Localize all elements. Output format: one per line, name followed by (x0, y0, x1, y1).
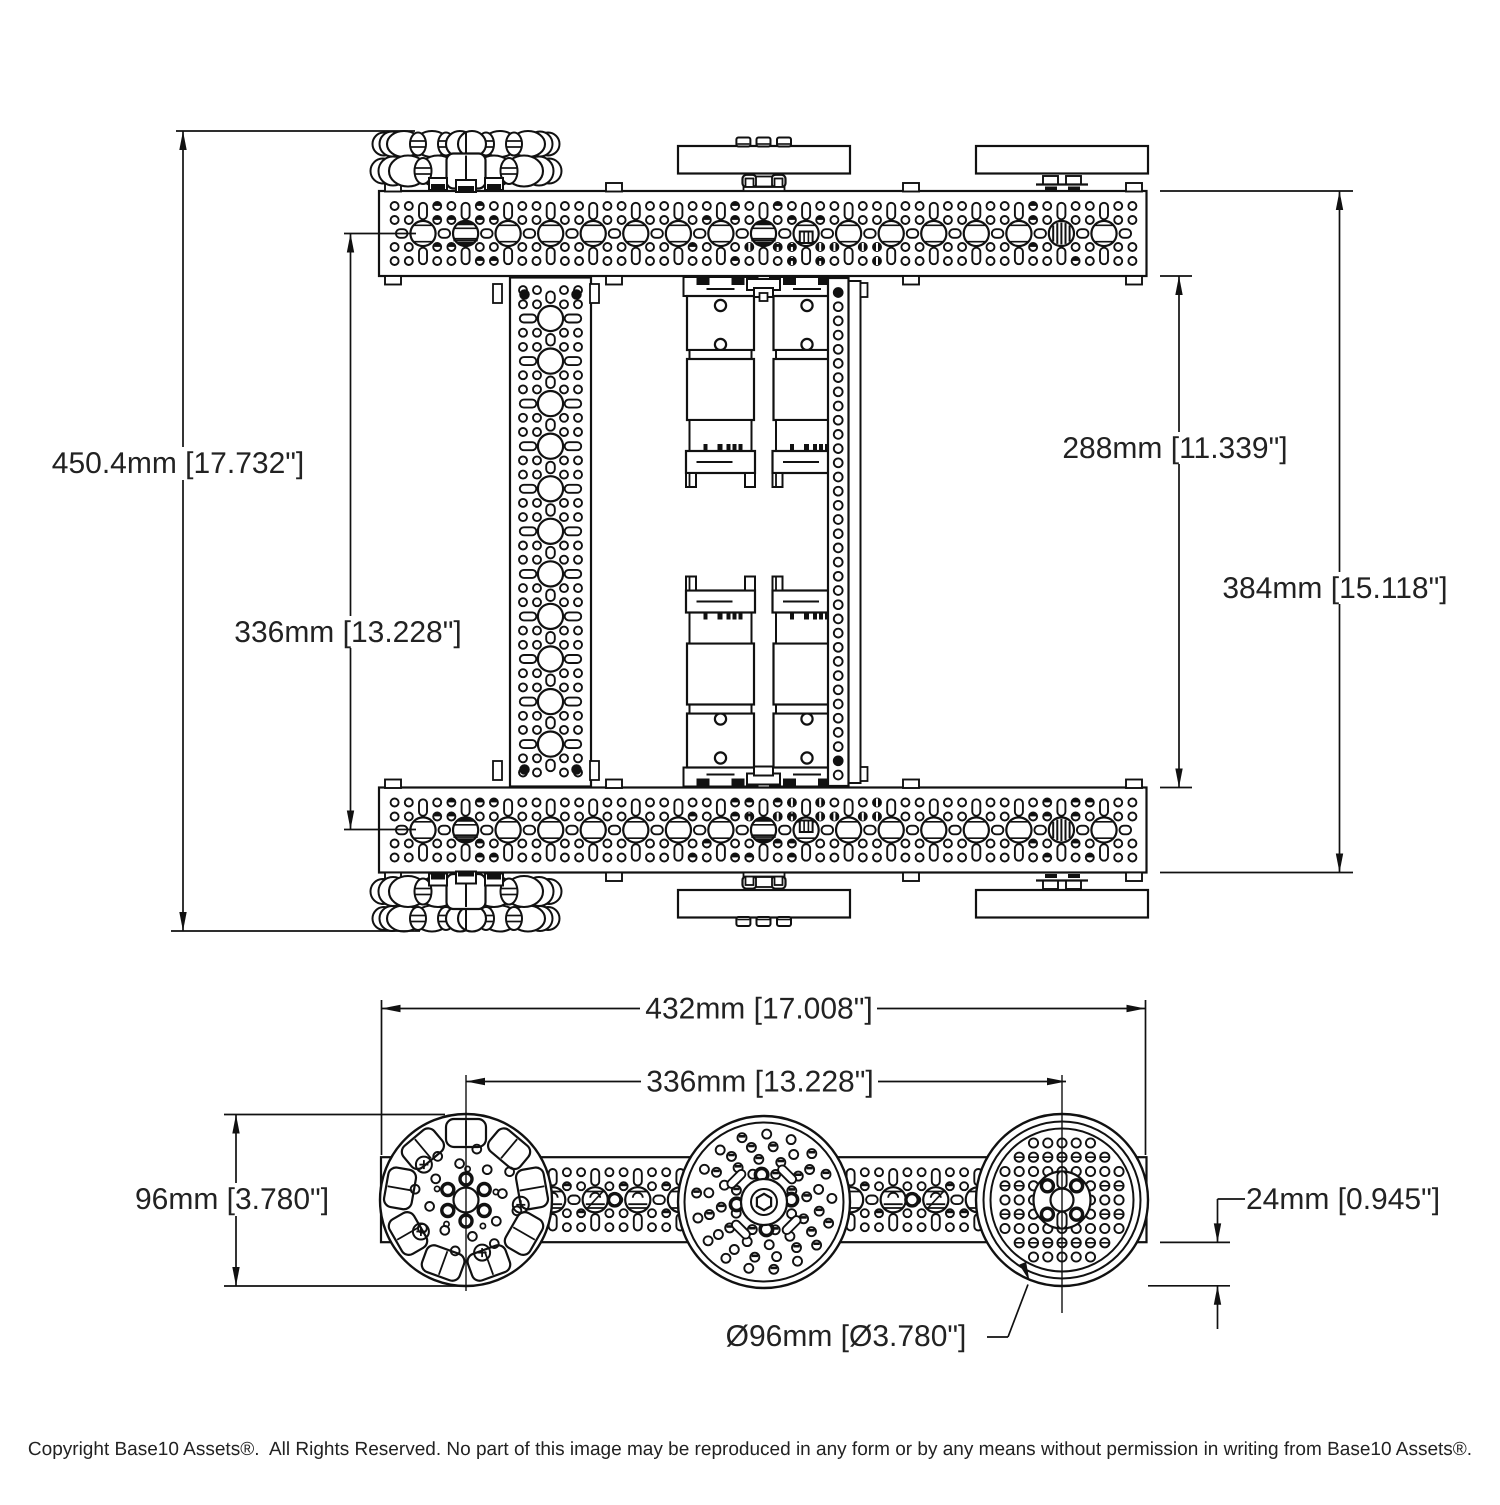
svg-text:Ø96mm [Ø3.780"]: Ø96mm [Ø3.780"] (726, 1320, 967, 1353)
svg-text:336mm [13.228"]: 336mm [13.228"] (646, 1066, 873, 1099)
svg-text:450.4mm [17.732"]: 450.4mm [17.732"] (52, 447, 304, 480)
svg-text:336mm [13.228"]: 336mm [13.228"] (234, 616, 461, 649)
svg-text:288mm [11.339"]: 288mm [11.339"] (1062, 432, 1287, 465)
svg-text:24mm [0.945"]: 24mm [0.945"] (1246, 1183, 1440, 1216)
svg-text:432mm [17.008"]: 432mm [17.008"] (645, 993, 872, 1026)
svg-text:384mm [15.118"]: 384mm [15.118"] (1222, 572, 1447, 605)
svg-text:96mm [3.780"]: 96mm [3.780"] (135, 1183, 329, 1216)
svg-text:Copyright Base10 Assets®. All: Copyright Base10 Assets®. All Rights Res… (28, 1439, 1472, 1460)
